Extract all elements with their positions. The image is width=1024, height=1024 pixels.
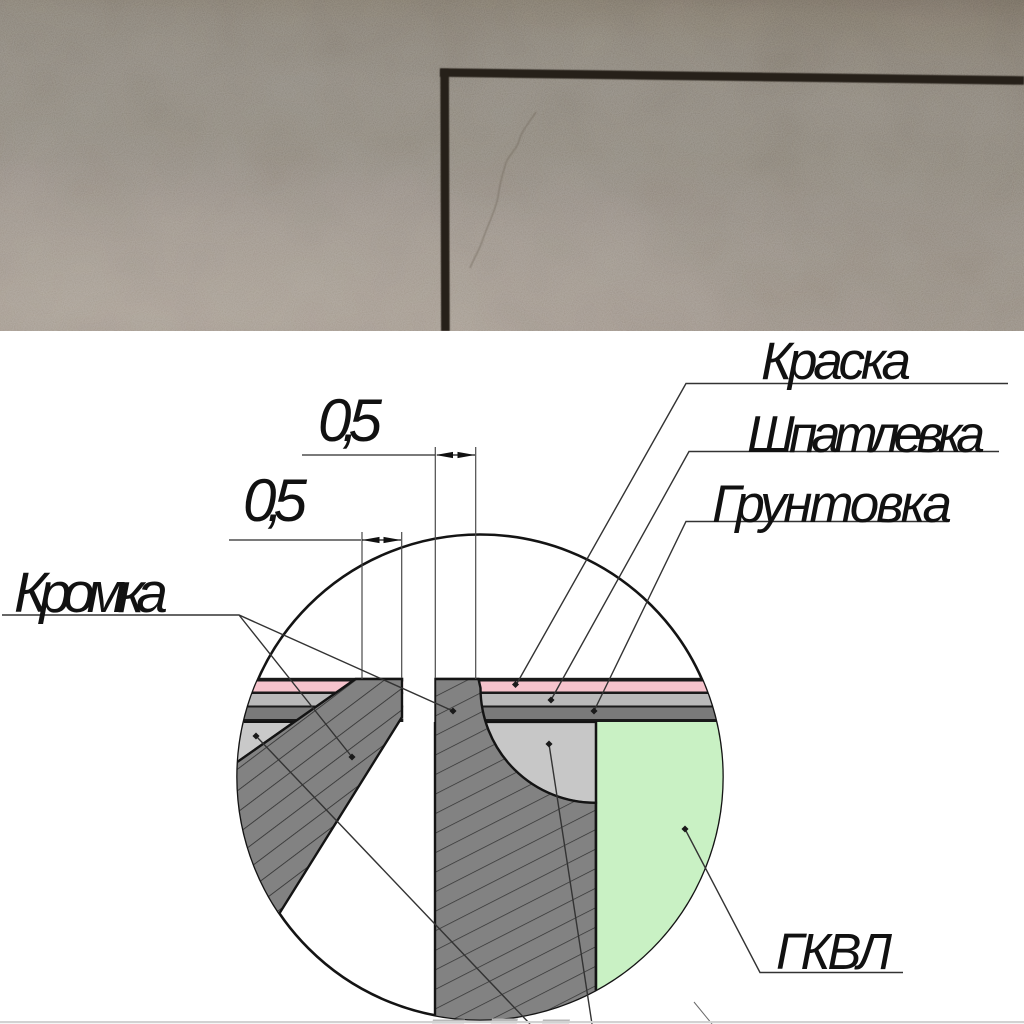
svg-text:Кромка: Кромка (14, 561, 168, 625)
svg-text:Грунтовка: Грунтовка (712, 475, 952, 534)
svg-text:0,5: 0,5 (243, 467, 308, 534)
svg-text:ГКВЛ: ГКВЛ (776, 923, 893, 980)
svg-text:Краска: Краска (761, 332, 911, 391)
svg-text:Шпатлевка: Шпатлевка (747, 406, 985, 464)
svg-text:0,5: 0,5 (318, 387, 383, 454)
